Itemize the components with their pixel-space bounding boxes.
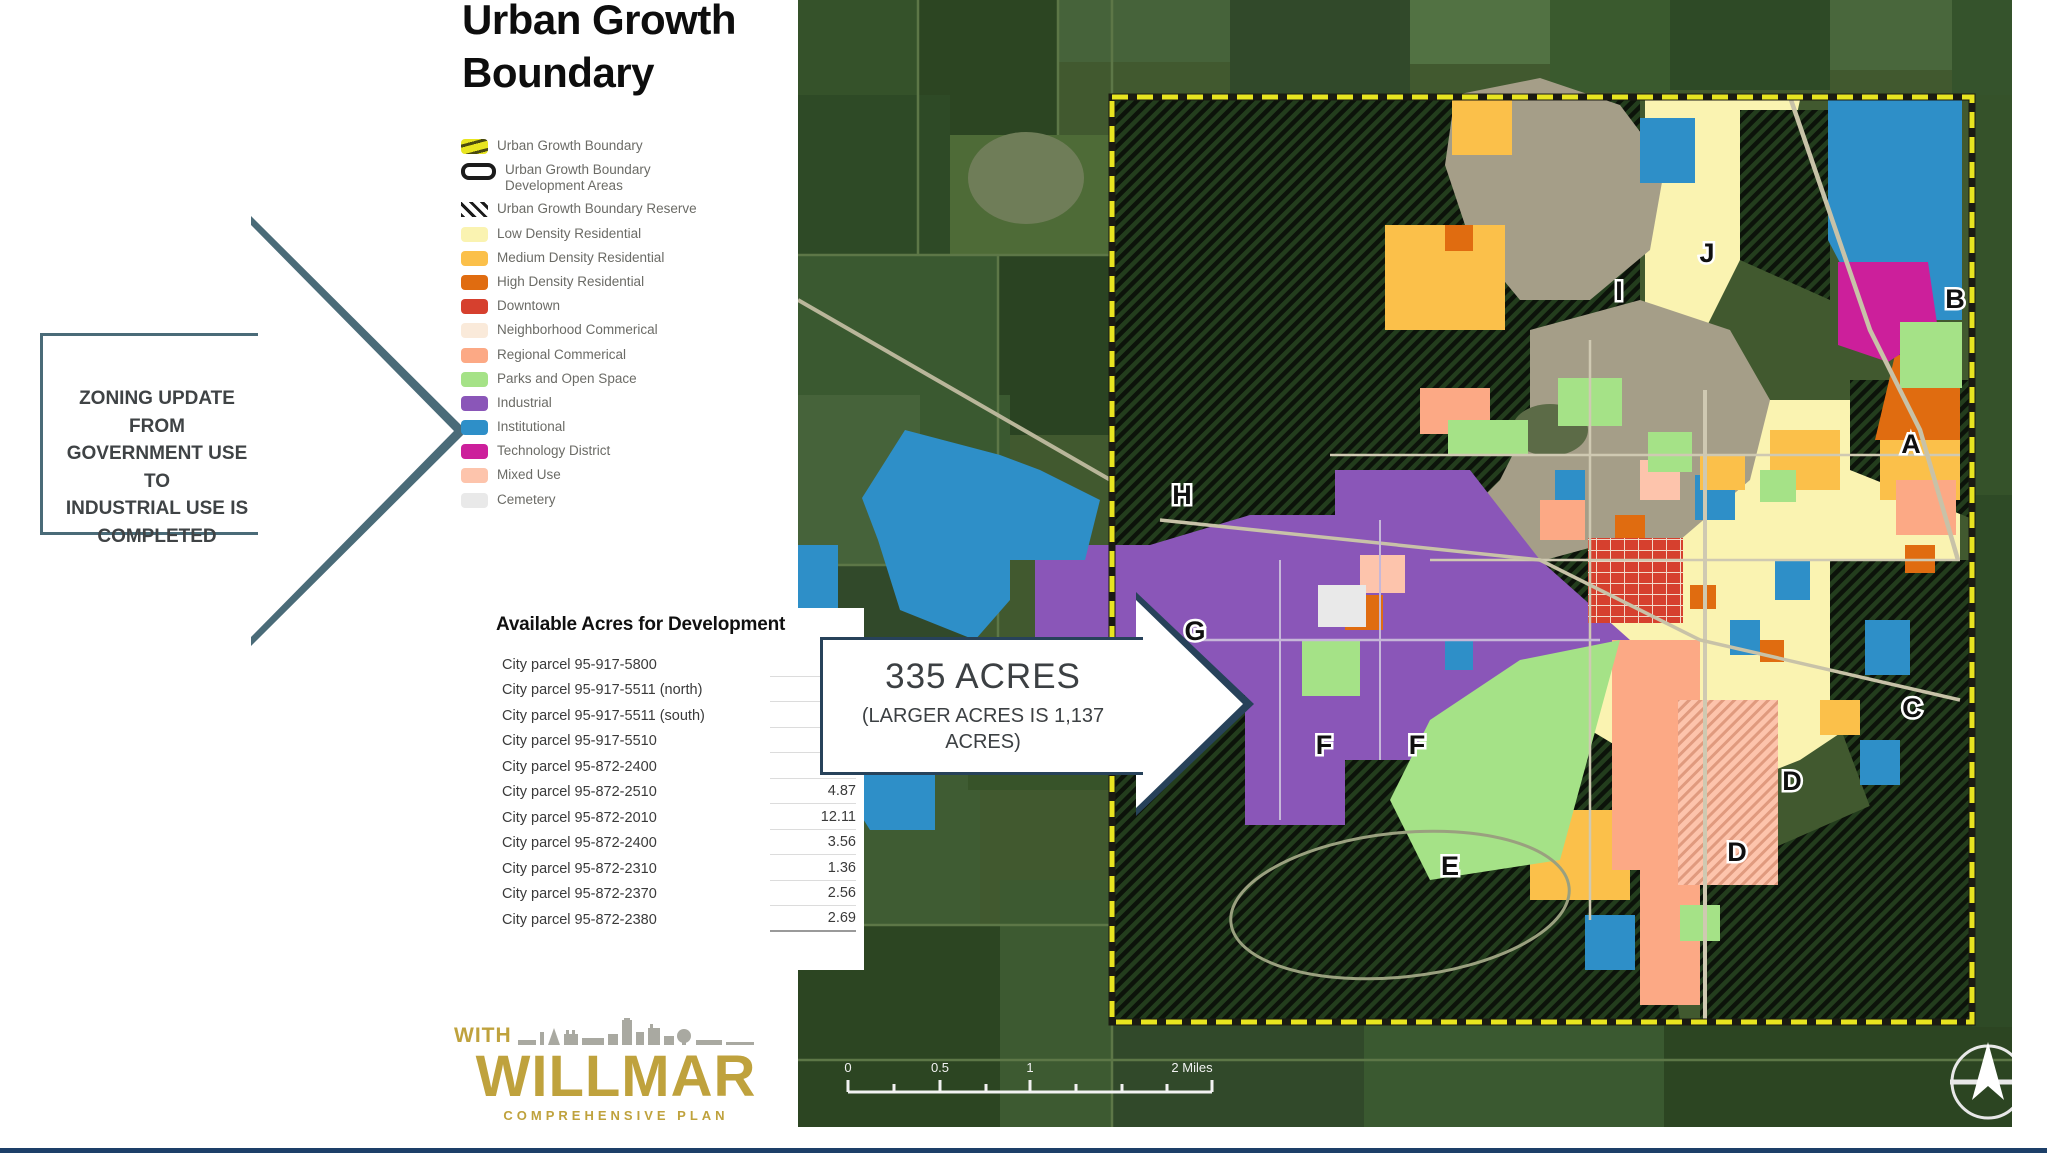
legend-item: Neighborhood Commerical bbox=[461, 322, 766, 338]
parks-swatch bbox=[461, 372, 488, 387]
table-row: City parcel 95-872-2310 1.36 bbox=[486, 856, 864, 882]
zoning-callout-arrowhead-fill bbox=[251, 225, 454, 637]
map-area-label: H bbox=[1172, 480, 1192, 510]
legend-item: Downtown bbox=[461, 298, 766, 314]
map-area-label: B bbox=[1945, 284, 1965, 314]
map-area-label: A bbox=[1901, 429, 1921, 459]
cemetery-swatch bbox=[461, 493, 488, 508]
scale-label: 0.5 bbox=[931, 1060, 949, 1075]
legend-item: High Density Residential bbox=[461, 274, 766, 290]
scale-label: 2 Miles bbox=[1171, 1060, 1213, 1075]
institutional-swatch bbox=[461, 420, 488, 435]
table-row: City parcel 95-872-2380 2.69 bbox=[486, 907, 864, 933]
legend-item: Urban Growth Boundary Reserve bbox=[461, 201, 766, 217]
legend-item: Urban Growth Boundary bbox=[461, 138, 766, 154]
table-row: City parcel 95-917-5510 6.39 bbox=[486, 729, 864, 755]
table-row: City parcel 95-872-2400 3.56 bbox=[486, 754, 864, 780]
ugb-boundary-swatch bbox=[461, 139, 488, 154]
acres-callout-arrowhead-fill bbox=[1136, 600, 1243, 808]
low-density-swatch bbox=[461, 227, 488, 242]
acres-callout-headline: 335 ACRES bbox=[885, 657, 1081, 697]
zone-downtown bbox=[1588, 538, 1683, 623]
ugb-reserve-swatch bbox=[461, 202, 488, 217]
legend-item: Technology District bbox=[461, 443, 766, 459]
legend-item: Urban Growth Boundary Development Areas bbox=[461, 162, 766, 193]
bottom-divider bbox=[0, 1148, 2047, 1153]
map-area-label: D bbox=[1727, 837, 1747, 867]
acres-table: Available Acres for Development City par… bbox=[486, 608, 864, 970]
table-row: City parcel 95-917-5511 (south) 5 bbox=[486, 703, 864, 729]
ugb-development-swatch bbox=[461, 163, 496, 180]
page-title: Urban Growth Boundary bbox=[462, 0, 762, 99]
scale-label: 1 bbox=[1026, 1060, 1033, 1075]
map-area-label: C bbox=[1902, 693, 1922, 723]
industrial-swatch bbox=[461, 396, 488, 411]
legend-item: Parks and Open Space bbox=[461, 371, 766, 387]
map-area-label: D bbox=[1782, 766, 1802, 796]
map-area-label: F bbox=[1316, 730, 1333, 760]
medium-density-swatch bbox=[461, 251, 488, 266]
map-area-label: I bbox=[1615, 276, 1623, 306]
legend: Urban Growth Boundary Urban Growth Bound… bbox=[461, 138, 766, 516]
map-area-label: J bbox=[1699, 238, 1714, 268]
legend-item: Regional Commerical bbox=[461, 347, 766, 363]
neighborhood-commercial-swatch bbox=[461, 323, 488, 338]
table-row: City parcel 95-872-2010 12.11 bbox=[486, 805, 864, 831]
acres-table-title: Available Acres for Development bbox=[496, 614, 864, 636]
table-row: City parcel 95-917-5800 27.06 bbox=[486, 652, 864, 678]
high-density-swatch bbox=[461, 275, 488, 290]
table-row: City parcel 95-917-5511 (north) 42 bbox=[486, 678, 864, 704]
legend-item: Institutional bbox=[461, 419, 766, 435]
slide: A B C D D E F F G H I J 0 0.5 1 bbox=[0, 0, 2047, 1153]
table-row: City parcel 95-872-2370 2.56 bbox=[486, 882, 864, 908]
downtown-swatch bbox=[461, 299, 488, 314]
acres-callout-subtext: (LARGER ACRES IS 1,137 ACRES) bbox=[838, 703, 1128, 755]
scale-label: 0 bbox=[844, 1060, 851, 1075]
legend-item: Industrial bbox=[461, 395, 766, 411]
table-row: City parcel 95-872-2510 4.87 bbox=[486, 780, 864, 806]
legend-item: Cemetery bbox=[461, 492, 766, 508]
technology-swatch bbox=[461, 444, 488, 459]
zoning-callout-text: ZONING UPDATE FROM GOVERNMENT USE TO IND… bbox=[52, 385, 262, 550]
mixed-use-swatch bbox=[461, 468, 488, 483]
willmar-logo: WITH WILLMAR COMPREHENSIVE PLAN bbox=[448, 1018, 784, 1123]
regional-commercial-swatch bbox=[461, 348, 488, 363]
legend-item: Medium Density Residential bbox=[461, 250, 766, 266]
logo-tagline: COMPREHENSIVE PLAN bbox=[448, 1108, 784, 1123]
legend-item: Low Density Residential bbox=[461, 226, 766, 242]
logo-wordmark: WILLMAR bbox=[448, 1048, 784, 1106]
map-area-label: E bbox=[1441, 851, 1459, 881]
table-row: City parcel 95-872-2400 3.56 bbox=[486, 831, 864, 857]
acres-callout-body: 335 ACRES (LARGER ACRES IS 1,137 ACRES) bbox=[820, 637, 1143, 775]
zone-cemetery bbox=[1318, 585, 1366, 627]
legend-item: Mixed Use bbox=[461, 467, 766, 483]
map-area-label: F bbox=[1409, 730, 1426, 760]
